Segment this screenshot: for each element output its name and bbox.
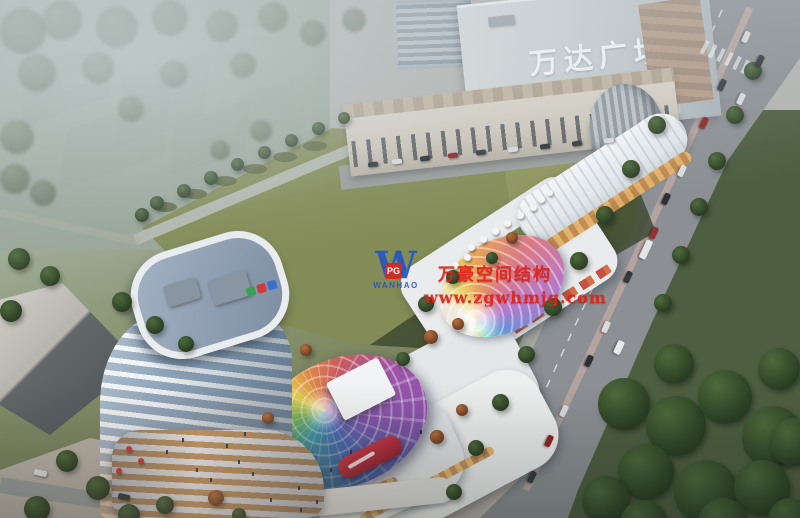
person xyxy=(300,508,302,512)
tree xyxy=(86,476,110,500)
person xyxy=(298,486,300,490)
tree xyxy=(300,344,312,356)
tree xyxy=(0,164,30,194)
tree xyxy=(300,20,326,46)
tree xyxy=(690,198,708,216)
person xyxy=(420,430,422,434)
tree xyxy=(150,196,164,210)
tree xyxy=(250,120,272,142)
tree xyxy=(0,120,34,154)
person xyxy=(316,500,318,504)
tree xyxy=(112,292,132,312)
tree xyxy=(596,206,614,224)
tree xyxy=(338,112,350,124)
tree xyxy=(177,184,191,198)
watermark-company: 万豪空间结构 xyxy=(438,260,607,285)
watermark-logo-badge: PG xyxy=(385,263,402,279)
person xyxy=(270,498,272,502)
watermark-logo: W PG WANHAO xyxy=(372,250,420,290)
tree xyxy=(208,490,224,506)
tree xyxy=(56,450,78,472)
tree xyxy=(30,180,56,206)
watermark-text: 万豪空间结构 www.zgwhmjg.com xyxy=(424,260,607,307)
watermark-logo-name: WANHAO xyxy=(372,281,420,290)
watermark: W PG WANHAO 万豪空间结构 www.zgwhmjg.com xyxy=(362,250,552,314)
tree xyxy=(518,346,535,363)
tree xyxy=(82,52,114,84)
tree xyxy=(40,266,60,286)
office-tower xyxy=(92,222,302,518)
tree xyxy=(456,404,468,416)
person xyxy=(196,468,198,472)
person xyxy=(238,460,240,464)
tree xyxy=(726,106,744,124)
umbrella xyxy=(492,228,499,235)
tree xyxy=(506,232,518,244)
tree xyxy=(178,336,194,352)
tree xyxy=(156,496,174,514)
tree xyxy=(146,316,164,334)
tree xyxy=(698,370,752,424)
tree xyxy=(96,6,138,48)
person xyxy=(166,450,168,454)
tree xyxy=(258,146,271,159)
tree xyxy=(42,0,82,40)
tree xyxy=(160,60,188,88)
scene: 万达广场 xyxy=(0,0,800,518)
tree xyxy=(312,122,325,135)
tree xyxy=(285,134,298,147)
tree xyxy=(0,300,22,322)
umbrella xyxy=(116,468,122,474)
tree xyxy=(648,116,666,134)
tree xyxy=(654,294,672,312)
person xyxy=(252,472,254,476)
person xyxy=(244,432,246,436)
tree xyxy=(232,508,246,518)
tree xyxy=(258,2,288,32)
umbrella xyxy=(126,446,132,452)
tree xyxy=(468,440,484,456)
umbrella xyxy=(480,236,487,243)
tree xyxy=(446,484,462,500)
umbrella xyxy=(504,220,511,227)
person xyxy=(226,444,228,448)
tree xyxy=(24,496,50,518)
tree xyxy=(0,8,46,54)
rooftop-unit xyxy=(162,277,201,308)
tree xyxy=(758,348,800,390)
tree xyxy=(342,8,366,32)
tree xyxy=(135,208,149,222)
tree xyxy=(654,344,694,384)
person xyxy=(210,478,212,482)
tree xyxy=(708,152,726,170)
logo-mark-red xyxy=(255,282,266,293)
tree xyxy=(424,330,438,344)
tree xyxy=(231,158,244,171)
umbrella xyxy=(538,196,545,203)
person xyxy=(330,468,332,472)
person xyxy=(182,438,184,442)
tree xyxy=(210,140,230,160)
tree xyxy=(230,52,256,78)
rooftop-unit xyxy=(488,15,515,28)
umbrella xyxy=(517,212,524,219)
tree xyxy=(452,318,464,330)
tree xyxy=(118,96,144,122)
tree xyxy=(672,246,690,264)
tree xyxy=(622,160,640,178)
tree xyxy=(8,248,30,270)
tree xyxy=(492,394,509,411)
tree xyxy=(206,10,238,42)
tree xyxy=(204,171,218,185)
tree xyxy=(18,54,56,92)
tree xyxy=(152,0,188,36)
umbrella xyxy=(547,190,553,196)
logo-mark-blue xyxy=(266,279,277,290)
logo-mark-green xyxy=(245,286,256,297)
tree xyxy=(396,352,410,366)
tree xyxy=(598,378,650,430)
tree xyxy=(262,412,274,424)
umbrella xyxy=(138,458,144,464)
watermark-url: www.zgwhmjg.com xyxy=(424,288,607,307)
person xyxy=(350,450,352,454)
tree xyxy=(430,430,444,444)
umbrella xyxy=(530,204,537,211)
